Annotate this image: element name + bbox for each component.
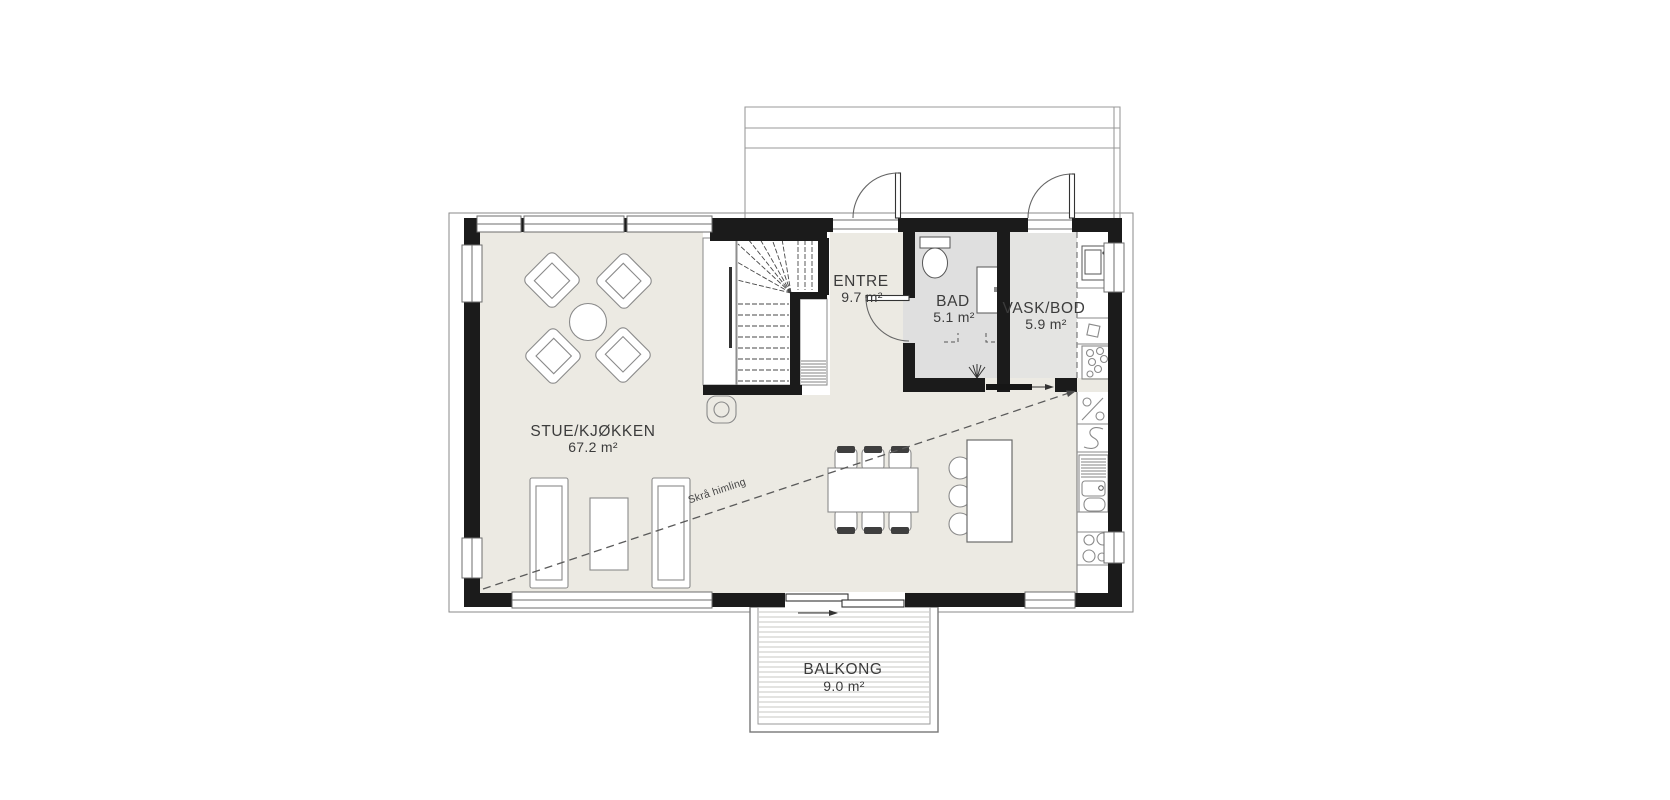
dining-table: [828, 468, 918, 512]
bathroom-cabinet: [977, 267, 1000, 313]
entrance-door: [833, 173, 901, 233]
room-label-entre: ENTRE: [833, 273, 889, 290]
window: [477, 216, 521, 232]
room-label-vask-bod: VASK/BOD: [1003, 300, 1086, 317]
room-area-balkong: 9.0 m²: [823, 678, 865, 694]
window: [1104, 532, 1124, 563]
dining-chairs-top: [835, 446, 911, 470]
stair-handrail: [729, 267, 732, 348]
room-area-vask-bod: 5.9 m²: [1025, 316, 1067, 332]
room-area-stue-kjokken: 67.2 m²: [568, 439, 618, 455]
window: [1104, 243, 1124, 292]
window: [512, 592, 712, 608]
window: [1025, 592, 1075, 608]
room-label-bad: BAD: [936, 293, 970, 310]
window: [627, 216, 712, 232]
window: [524, 216, 624, 232]
floor-plan-canvas: Skrå himling STUE/KJØKKEN 67.2 m² ENTRE …: [0, 0, 1670, 800]
dining-chairs-bottom: [835, 510, 911, 534]
window: [462, 538, 482, 578]
stair-shaft: [800, 299, 827, 385]
dining-set: [828, 446, 918, 534]
staircase: [703, 230, 829, 395]
room-area-entre: 9.7 m²: [841, 289, 883, 305]
room-label-stue-kjokken: STUE/KJØKKEN: [530, 423, 655, 440]
vask-bod-entry-door: [1028, 174, 1075, 233]
room-label-balkong: BALKONG: [803, 661, 882, 678]
window: [462, 245, 482, 302]
room-area-bad: 5.1 m²: [933, 309, 975, 325]
round-table: [570, 304, 607, 341]
side-table: [590, 498, 628, 570]
toilet: [920, 237, 950, 278]
entrance-porch: [745, 107, 1120, 218]
